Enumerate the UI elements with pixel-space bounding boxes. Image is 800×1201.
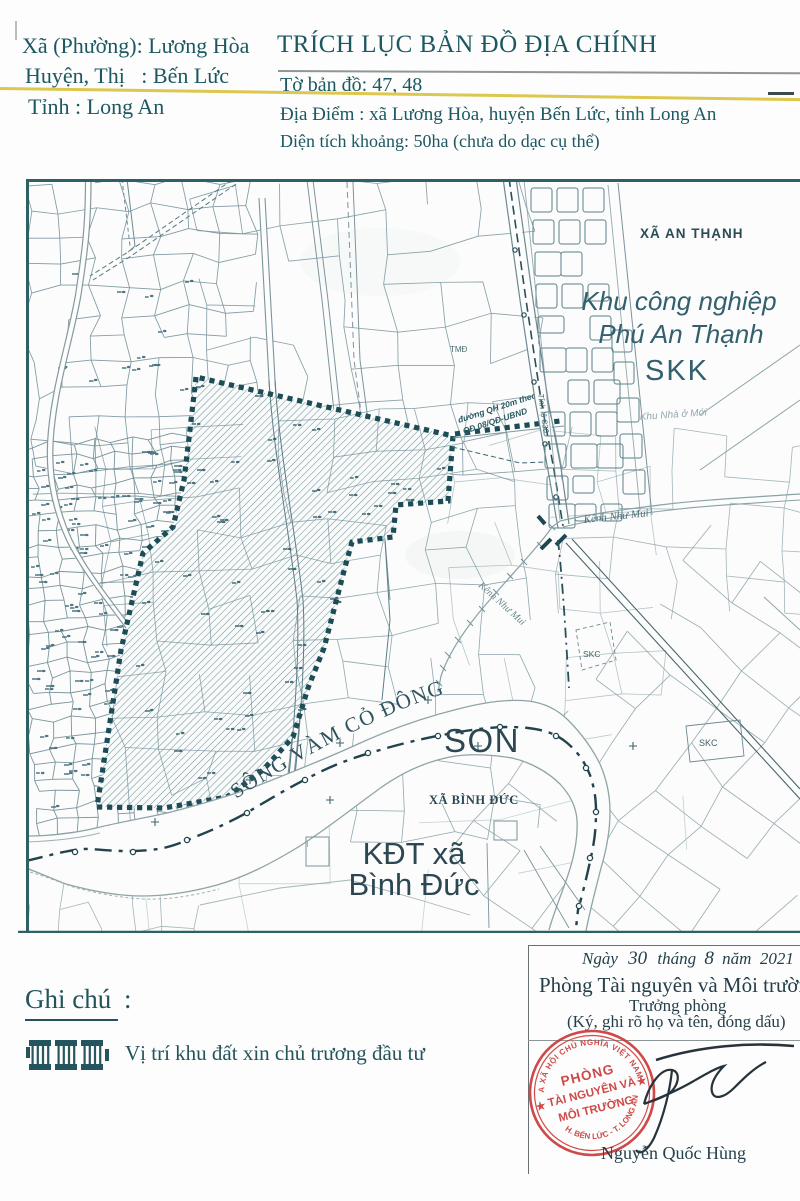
svg-text:TMĐ: TMĐ [450, 345, 468, 354]
svg-text:Phú An Thạnh: Phú An Thạnh [598, 319, 763, 349]
svg-text:SKC: SKC [699, 738, 718, 748]
svg-text:XÃ AN THẠNH: XÃ AN THẠNH [640, 226, 744, 241]
svg-text:XÃ BÌNH ĐỨC: XÃ BÌNH ĐỨC [429, 793, 519, 807]
svg-text:Khu công nghiệp: Khu công nghiệp [581, 286, 776, 316]
svg-text:SKC: SKC [583, 649, 600, 659]
svg-text:Bình Đức: Bình Đức [348, 867, 479, 902]
svg-text:SKK: SKK [645, 355, 709, 387]
svg-text:SON: SON [444, 722, 520, 759]
svg-text:KĐT xã: KĐT xã [363, 836, 467, 871]
